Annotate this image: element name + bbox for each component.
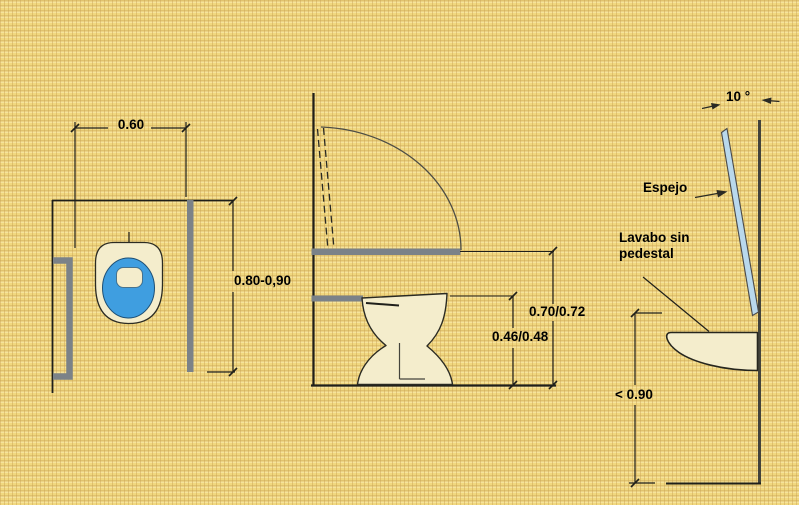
mirror-sink-side-view: [629, 98, 780, 488]
folding-bar-swing-arc: [321, 127, 461, 250]
side-seat-height-label: 0.46/0.48: [492, 329, 548, 344]
plan-fixed-grab-bar: [53, 261, 70, 377]
plan-bar-length-label: 0.80-0,90: [234, 273, 291, 288]
side-bar-height-label: 0.70/0.72: [529, 304, 585, 319]
sink-height-label: < 0.90: [615, 387, 653, 402]
espejo-label: Espejo: [643, 180, 687, 195]
plan-width-label: 0.60: [106, 117, 156, 132]
diagram-canvas: [0, 0, 799, 505]
lavabo-label-line2: pedestal: [619, 246, 674, 261]
sink-side: [667, 333, 758, 371]
folding-bar-raised-dashed: [318, 128, 335, 250]
lavabo-label-line1: Lavabo sin: [619, 230, 690, 245]
mirror: [722, 129, 759, 316]
plan-folding-grab-bar: [187, 200, 194, 372]
toilet-side-view: [311, 93, 557, 389]
lavabo-leader-line: [643, 277, 709, 332]
accessibility-diagram: 0.60 0.80-0,90 0.70/0.72 0.46/0.48 10 ° …: [0, 0, 799, 505]
toilet-flush-plan: [117, 268, 143, 288]
mirror-angle-label: 10 °: [726, 89, 750, 104]
plan-bar-length-dimension: [207, 197, 237, 376]
toilet-side-silhouette: [358, 294, 453, 385]
wall-grab-bar-side: [312, 296, 364, 302]
folding-grab-bar-side: [312, 249, 461, 256]
toilet-plan-view: [52, 122, 237, 393]
espejo-arrow: [695, 190, 728, 198]
plan-width-dimension: [71, 122, 190, 248]
